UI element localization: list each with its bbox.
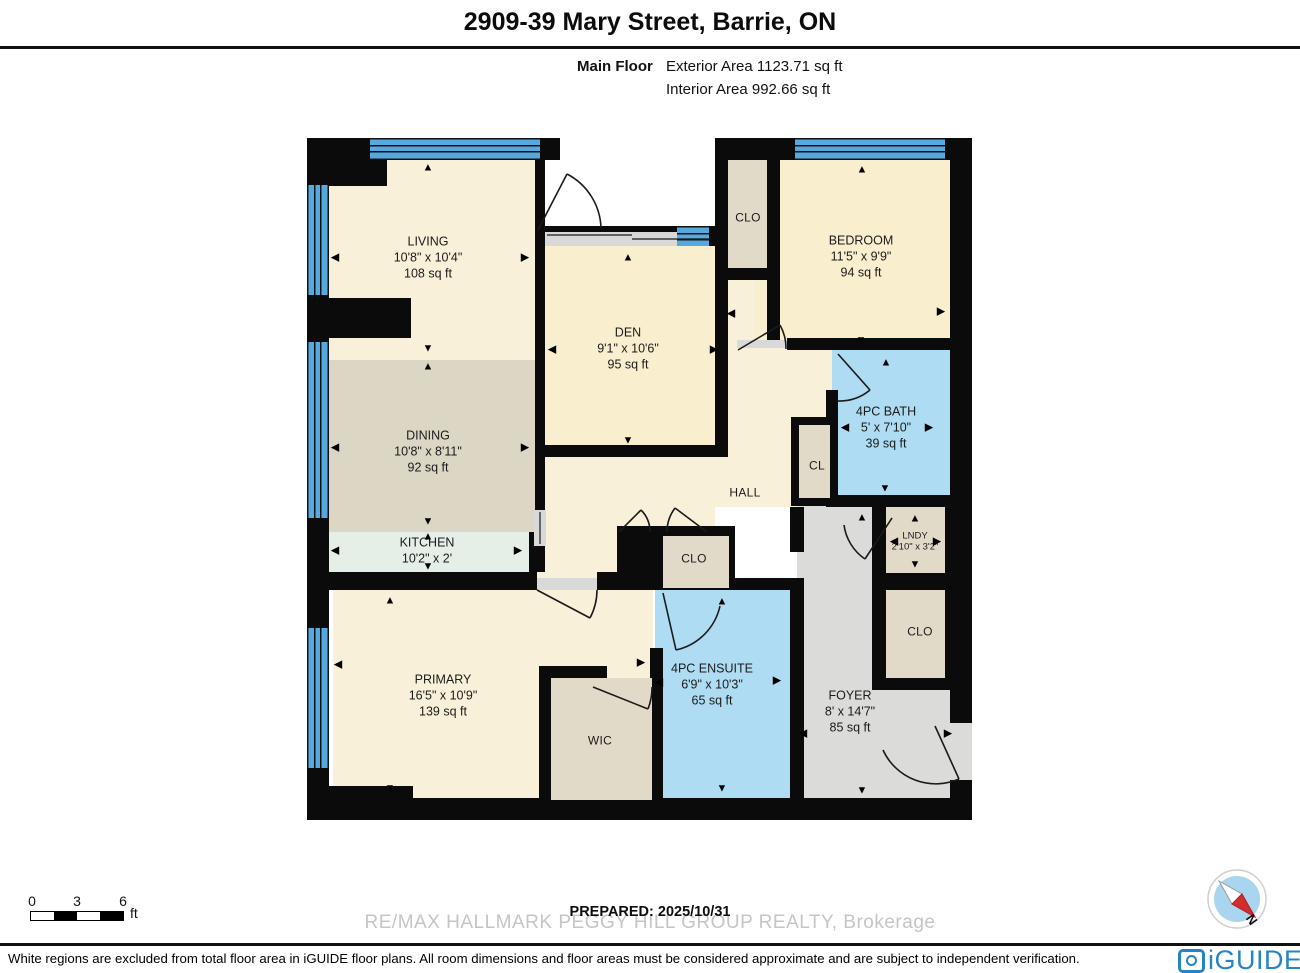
dimension-arrow: ◀ — [890, 537, 898, 548]
floor-plan: LIVING 10'8" x 10'4" 108 sq ft DINING 10… — [307, 138, 972, 820]
dimension-arrow: ▶ — [925, 423, 933, 434]
room-label-clo-right: CLO — [907, 624, 933, 639]
footer-divider — [0, 943, 1300, 946]
dimension-arrow: ▲ — [423, 532, 434, 543]
room-name: 4PC BATH — [856, 404, 916, 418]
dimension-arrow: ▼ — [423, 517, 434, 528]
room-area: 139 sq ft — [419, 704, 467, 718]
room-name: FOYER — [828, 688, 871, 702]
dimension-arrow: ▼ — [623, 436, 634, 447]
room-name: LNDY — [902, 531, 927, 542]
exterior-area: Exterior Area 1123.71 sq ft — [666, 58, 843, 75]
header-divider — [0, 46, 1300, 49]
room-label-hall: HALL — [729, 485, 760, 500]
room-name: DINING — [406, 428, 450, 442]
dimension-arrow: ▲ — [857, 165, 868, 176]
room-label-cl: CL — [809, 458, 825, 473]
room-dims: 5' x 7'10" — [861, 420, 911, 434]
room-label-primary: PRIMARY 16'5" x 10'9" 139 sq ft — [409, 672, 478, 719]
footer-disclaimer: White regions are excluded from total fl… — [8, 951, 1080, 966]
dimension-arrow: ◀ — [548, 345, 556, 356]
room-area: 39 sq ft — [865, 436, 906, 450]
room-label-clo-top: CLO — [735, 210, 761, 225]
dimension-arrow: ◀ — [655, 678, 663, 689]
dimension-arrow: ▶ — [514, 546, 522, 557]
room-area: 92 sq ft — [407, 460, 448, 474]
page-title: 2909-39 Mary Street, Barrie, ON — [0, 8, 1300, 37]
iguide-logo-text: iGUIDE — [1208, 945, 1300, 973]
room-dims: 10'8" x 8'11" — [394, 444, 462, 458]
dimension-arrow: ▲ — [881, 358, 892, 369]
room-name: DEN — [615, 325, 641, 339]
dimension-arrow: ▲ — [423, 362, 434, 373]
room-dims: 9'1" x 10'6" — [597, 341, 659, 355]
dimension-arrow: ▶ — [773, 676, 781, 687]
room-label-den: DEN 9'1" x 10'6" 95 sq ft — [597, 325, 659, 372]
dimension-arrow: ▼ — [880, 484, 891, 495]
dimension-arrow: ▲ — [857, 513, 868, 524]
scale-bar — [30, 911, 124, 921]
dimension-arrow: ◀ — [334, 660, 342, 671]
dimension-arrow: ▼ — [856, 336, 867, 347]
room-label-laundry: LNDY 2'10" x 3'2" — [892, 531, 939, 554]
dimension-arrow: ◀ — [727, 309, 735, 320]
room-label-ensuite: 4PC ENSUITE 6'9" x 10'3" 65 sq ft — [671, 661, 753, 708]
room-name: PRIMARY — [415, 672, 472, 686]
dimension-arrow: ▶ — [710, 345, 718, 356]
scale-tick-0: 0 — [28, 893, 36, 909]
prepared-date: PREPARED: 2025/10/31 — [570, 904, 731, 920]
compass-icon — [1206, 868, 1268, 930]
dimension-arrow: ▶ — [944, 729, 952, 740]
room-dims: 16'5" x 10'9" — [409, 688, 478, 702]
dimension-arrow: ◀ — [331, 546, 339, 557]
room-area: 95 sq ft — [607, 357, 648, 371]
dimension-arrow: ▼ — [385, 784, 396, 795]
room-label-bath: 4PC BATH 5' x 7'10" 39 sq ft — [856, 404, 916, 451]
dimension-arrow: ▶ — [521, 253, 529, 264]
dimension-arrow: ▲ — [717, 597, 728, 608]
room-label-wic: WIC — [588, 733, 612, 748]
dimension-arrow: ▶ — [937, 307, 945, 318]
dimension-arrow: ▶ — [521, 443, 529, 454]
dimension-arrow: ◀ — [331, 443, 339, 454]
dimension-arrow: ▼ — [717, 784, 728, 795]
room-dims: 6'9" x 10'3" — [681, 677, 743, 691]
scale-tick-3: 3 — [73, 893, 81, 909]
dimension-arrow: ▼ — [910, 560, 921, 571]
room-name: BEDROOM — [829, 233, 894, 247]
room-area: 65 sq ft — [692, 693, 733, 707]
room-name: LIVING — [408, 234, 449, 248]
iguide-logo: iGUIDE — [1178, 945, 1300, 973]
dimension-arrow: ◀ — [799, 729, 807, 740]
dimension-arrow: ▲ — [910, 514, 921, 525]
room-area: 94 sq ft — [841, 265, 882, 279]
room-label-clo-hall: CLO — [681, 551, 707, 566]
room-area: 108 sq ft — [404, 266, 452, 280]
dimension-arrow: ▲ — [423, 163, 434, 174]
dimension-arrow: ▲ — [385, 596, 396, 607]
dimension-arrow: ▶ — [637, 658, 645, 669]
scale-tick-6: 6 — [119, 893, 127, 909]
room-dims: 10'8" x 10'4" — [394, 250, 463, 264]
dimension-arrow: ▼ — [423, 562, 434, 573]
room-label-dining: DINING 10'8" x 8'11" 92 sq ft — [394, 428, 462, 475]
dimension-arrow: ▲ — [623, 253, 634, 264]
scale-unit: ft — [130, 905, 138, 921]
dimension-arrow: ▶ — [933, 537, 941, 548]
room-dims: 8' x 14'7" — [825, 704, 875, 718]
room-dims: 11'5" x 9'9" — [831, 249, 892, 263]
dimension-arrow: ▼ — [857, 786, 868, 797]
dimension-arrow: ◀ — [841, 423, 849, 434]
iguide-logo-icon — [1178, 949, 1205, 973]
dimension-arrow: ◀ — [331, 253, 339, 264]
room-label-bedroom: BEDROOM 11'5" x 9'9" 94 sq ft — [829, 233, 894, 280]
room-label-foyer: FOYER 8' x 14'7" 85 sq ft — [825, 688, 875, 735]
room-dims: 2'10" x 3'2" — [892, 542, 939, 553]
room-area: 85 sq ft — [830, 720, 871, 734]
floor-plan-page: 2909-39 Mary Street, Barrie, ON Main Flo… — [0, 0, 1300, 973]
floor-label: Main Floor — [577, 58, 653, 75]
dimension-arrow: ▼ — [423, 344, 434, 355]
room-label-living: LIVING 10'8" x 10'4" 108 sq ft — [394, 234, 463, 281]
room-name: 4PC ENSUITE — [671, 661, 753, 675]
interior-area: Interior Area 992.66 sq ft — [666, 81, 830, 98]
